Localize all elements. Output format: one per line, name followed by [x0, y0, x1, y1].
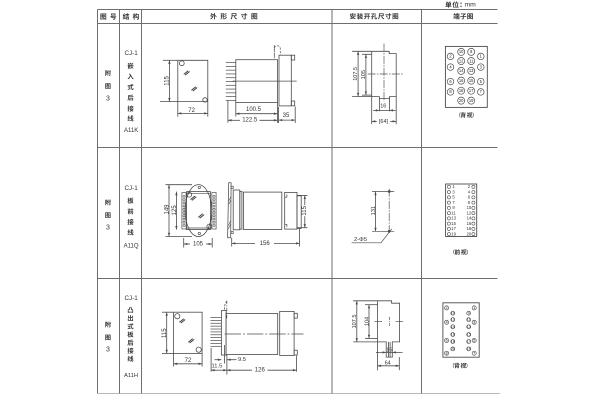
svg-text:156: 156: [260, 241, 271, 247]
svg-text:15: 15: [451, 221, 456, 226]
svg-text:(: (: [459, 113, 461, 119]
svg-text:7: 7: [473, 350, 475, 355]
svg-text:2: 2: [449, 54, 452, 59]
svg-text:12: 12: [451, 317, 455, 322]
svg-text:10: 10: [459, 49, 464, 54]
svg-text:9.5: 9.5: [238, 357, 246, 363]
svg-text:6: 6: [446, 338, 448, 343]
svg-text:18: 18: [467, 226, 472, 231]
svg-text:3: 3: [106, 347, 110, 354]
svg-text:19: 19: [451, 231, 456, 236]
svg-text:11: 11: [451, 210, 456, 215]
svg-text:8: 8: [449, 89, 452, 94]
svg-text:2: 2: [446, 305, 448, 310]
svg-text:): ): [466, 250, 468, 256]
svg-text:9: 9: [452, 205, 455, 210]
svg-text:3: 3: [480, 64, 483, 69]
svg-text:A11Q: A11Q: [124, 243, 139, 249]
svg-text:1: 1: [480, 54, 483, 59]
svg-text:16: 16: [380, 104, 386, 110]
svg-text:3: 3: [106, 225, 110, 232]
svg-text:4: 4: [468, 189, 471, 194]
svg-text:115: 115: [162, 328, 168, 338]
svg-text:100.5: 100.5: [246, 107, 262, 113]
svg-text:8: 8: [446, 350, 448, 355]
svg-text:CJ-1: CJ-1: [124, 295, 138, 302]
svg-text:107.5: 107.5: [352, 315, 358, 329]
svg-text:125: 125: [172, 205, 178, 216]
svg-text:16: 16: [451, 332, 455, 337]
svg-text:5: 5: [473, 338, 475, 343]
svg-text:20: 20: [459, 98, 464, 103]
svg-text:35: 35: [283, 113, 290, 119]
svg-text:12: 12: [467, 210, 472, 215]
svg-text:A11K: A11K: [124, 128, 138, 134]
svg-text:10: 10: [467, 205, 472, 210]
svg-text:17: 17: [467, 339, 471, 344]
svg-text:149: 149: [164, 204, 170, 215]
svg-text:115: 115: [164, 75, 170, 85]
svg-text:11: 11: [469, 58, 474, 63]
svg-text:18: 18: [459, 88, 464, 93]
svg-text:122.5: 122.5: [242, 118, 258, 124]
svg-text:15: 15: [469, 78, 474, 83]
svg-text:CJ-1: CJ-1: [124, 50, 138, 57]
svg-text:3: 3: [452, 189, 455, 194]
svg-text:12: 12: [459, 58, 464, 63]
svg-text:(: (: [453, 363, 455, 369]
svg-text:104: 104: [364, 317, 370, 326]
svg-text:105: 105: [193, 241, 204, 247]
svg-text:20: 20: [467, 231, 472, 236]
svg-text:18: 18: [451, 339, 455, 344]
svg-text:CJ-1: CJ-1: [124, 185, 138, 192]
svg-text:14: 14: [459, 68, 464, 73]
svg-text:(: (: [453, 250, 455, 256]
svg-text:5: 5: [452, 195, 455, 200]
svg-text:16: 16: [386, 347, 392, 353]
svg-text:6: 6: [468, 195, 471, 200]
svg-text:3: 3: [473, 319, 475, 324]
svg-text:115: 115: [302, 205, 308, 215]
svg-text:mm: mm: [465, 2, 477, 9]
svg-text:72: 72: [188, 108, 195, 114]
svg-text:126: 126: [255, 367, 266, 373]
svg-text:3: 3: [106, 96, 110, 103]
svg-text:): ): [472, 113, 474, 119]
svg-text:17: 17: [469, 88, 474, 93]
svg-text:15: 15: [467, 332, 471, 337]
svg-text:64: 64: [385, 360, 391, 366]
svg-text:[64]: [64]: [379, 119, 389, 125]
svg-text:9: 9: [468, 310, 470, 315]
svg-text:13: 13: [469, 68, 474, 73]
svg-text:72: 72: [185, 358, 192, 364]
svg-text:16: 16: [459, 78, 464, 83]
svg-text:1: 1: [473, 305, 475, 310]
svg-text:9: 9: [470, 49, 473, 54]
svg-text:): ): [466, 363, 468, 369]
svg-text:16: 16: [467, 221, 472, 226]
svg-text:19: 19: [469, 98, 474, 103]
svg-text:131: 131: [371, 206, 377, 215]
svg-text:19: 19: [467, 346, 471, 351]
svg-text:107.5: 107.5: [353, 67, 359, 81]
svg-text:4: 4: [449, 64, 452, 69]
svg-text:105: 105: [361, 70, 367, 79]
svg-text:2-Φ5: 2-Φ5: [354, 237, 367, 243]
svg-text:17: 17: [451, 226, 456, 231]
svg-text:5: 5: [480, 79, 483, 84]
svg-text:11: 11: [467, 317, 471, 322]
svg-text:A11H: A11H: [124, 373, 138, 379]
svg-text:7: 7: [480, 89, 483, 94]
svg-text:13: 13: [467, 324, 471, 329]
svg-text:6: 6: [449, 79, 452, 84]
svg-text:11.5: 11.5: [211, 364, 222, 370]
